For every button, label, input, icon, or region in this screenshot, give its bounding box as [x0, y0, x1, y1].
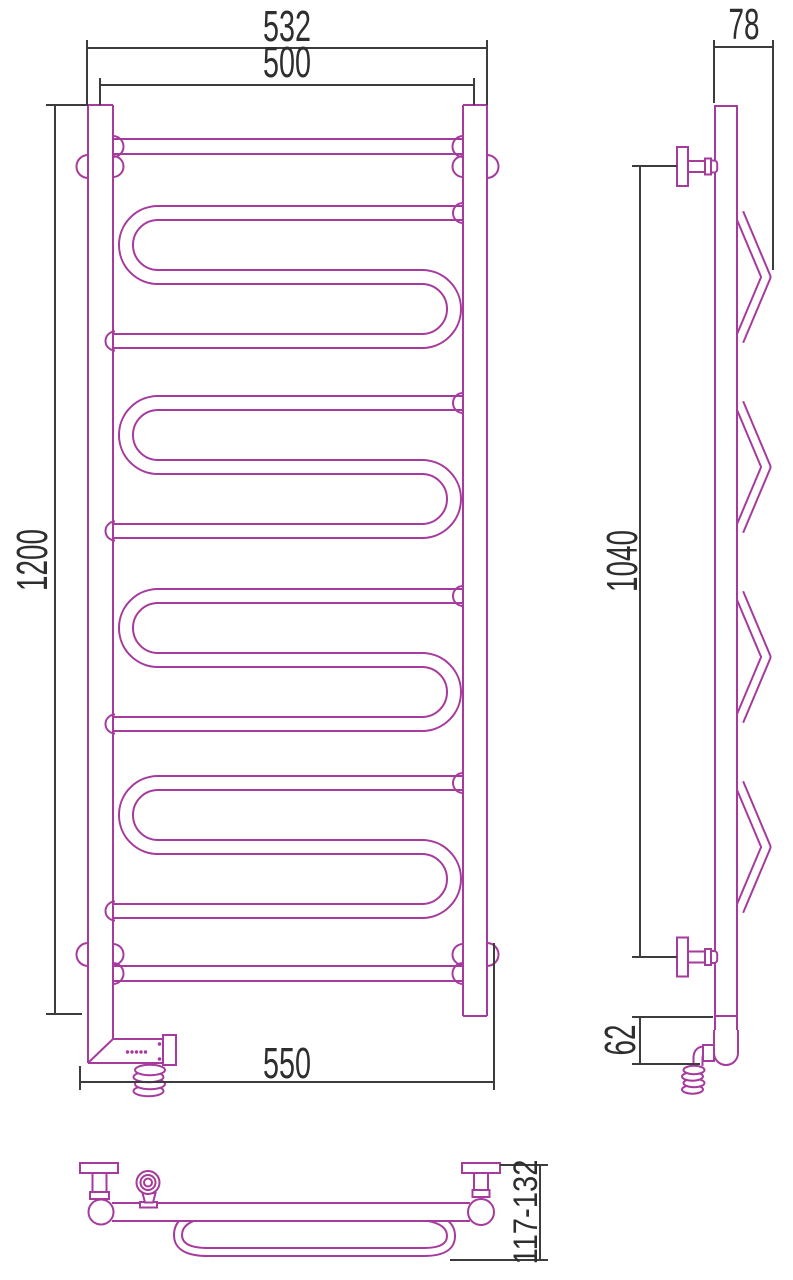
dim-label-117-132: 117-132 — [507, 1160, 545, 1265]
serpentine-coil-4 — [113, 783, 463, 911]
towel-rail-drawing: 532 500 1200 550 78 1040 62 117-132 — [0, 0, 793, 1280]
dim-label-550: 550 — [263, 1039, 311, 1088]
side-view — [677, 105, 766, 1094]
side-power-cable-coil — [682, 1066, 705, 1094]
dim-label-78: 78 — [729, 0, 760, 49]
side-loop-3 — [739, 593, 766, 721]
rail-section-left — [89, 1200, 114, 1225]
wall-bracket-top — [677, 147, 717, 186]
dim-front-height: 1200 — [8, 105, 88, 1014]
tube-joint-collars — [106, 136, 464, 984]
power-cable-coil — [134, 1065, 166, 1096]
left-rail-miter-joint — [88, 1039, 113, 1063]
thermostat-knob — [137, 1171, 160, 1203]
wall-bracket-bottom — [677, 938, 717, 977]
dim-label-1200: 1200 — [8, 529, 57, 591]
serpentine-coil-1 — [113, 213, 463, 341]
serpentine-coil-3 — [113, 596, 463, 724]
side-rail-tube — [714, 105, 738, 1065]
serpentine-coil-2 — [113, 403, 463, 531]
dim-side-bracket-span: 1040 — [598, 166, 677, 957]
dim-label-1040: 1040 — [598, 530, 647, 592]
indicator-dots — [126, 1042, 162, 1061]
side-loop-4 — [739, 783, 766, 911]
rail-section-right — [468, 1199, 494, 1225]
side-loop-1 — [739, 213, 766, 341]
front-view — [77, 105, 499, 1096]
top-bracket-right — [462, 1163, 500, 1197]
electric-box-end-cap — [163, 1035, 176, 1065]
dim-label-500: 500 — [263, 38, 311, 87]
top-view — [80, 1163, 500, 1252]
side-loop-2 — [739, 403, 766, 531]
cable-elbow — [698, 1045, 714, 1066]
top-bracket-left — [80, 1163, 118, 1199]
right-rail — [463, 105, 487, 1016]
technical-drawing-page: 532 500 1200 550 78 1040 62 117-132 — [0, 0, 793, 1280]
dim-label-62: 62 — [596, 1025, 645, 1056]
